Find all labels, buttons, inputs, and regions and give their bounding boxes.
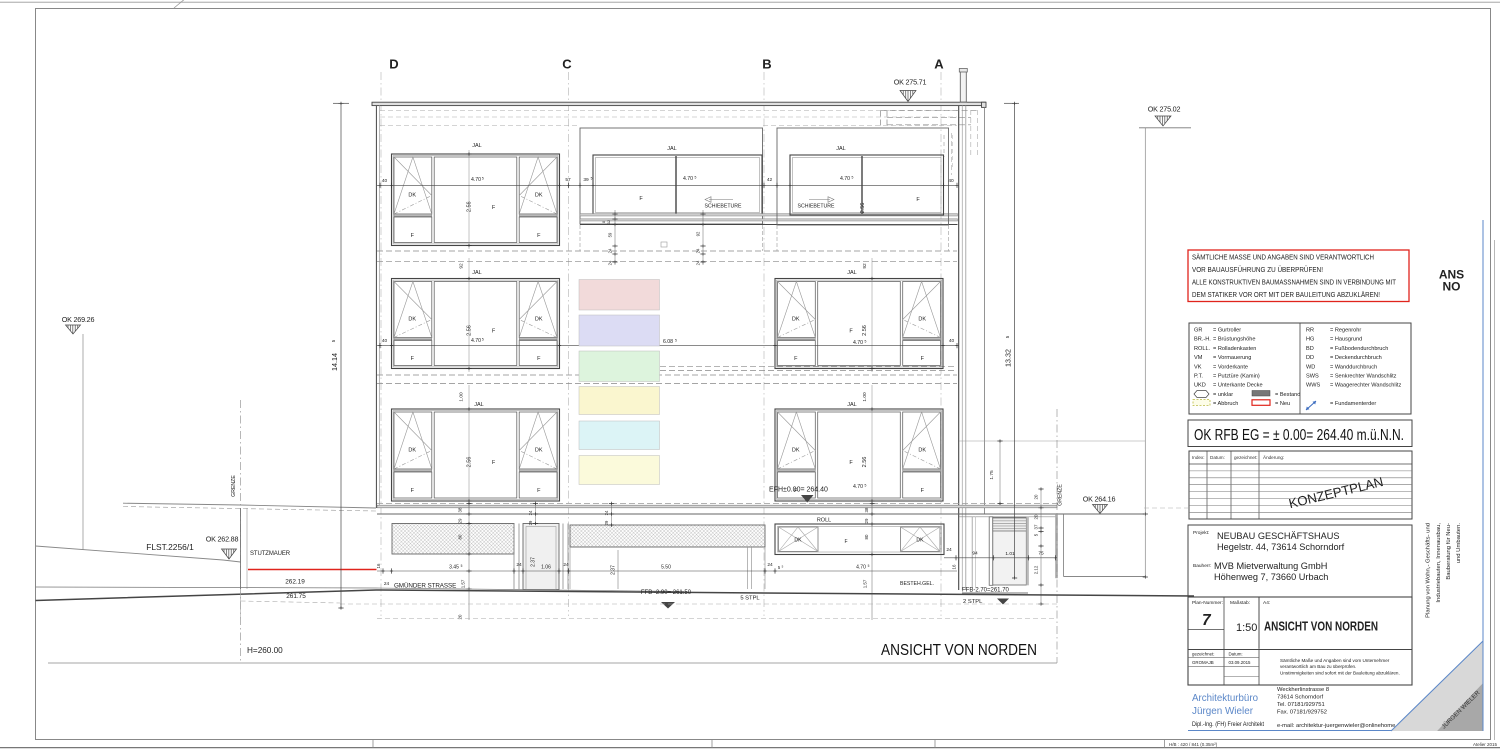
svg-text:5: 5 — [865, 484, 867, 488]
svg-text:2.56: 2.56 — [467, 457, 473, 468]
svg-text:= Abbruch: = Abbruch — [1213, 401, 1238, 407]
svg-text:29: 29 — [604, 520, 609, 525]
svg-text:e-mail: architektur-juergenwie: e-mail: architektur-juergenwieler@online… — [1277, 723, 1403, 729]
svg-text:H/B : 420 / 841 (0.35m²): H/B : 420 / 841 (0.35m²) — [1169, 742, 1218, 747]
svg-text:= Gurtroller: = Gurtroller — [1213, 328, 1241, 334]
svg-text:13.32: 13.32 — [1004, 349, 1013, 367]
svg-text:24: 24 — [608, 248, 613, 253]
svg-text:24: 24 — [946, 547, 952, 553]
svg-text:40: 40 — [948, 178, 954, 184]
svg-text:5: 5 — [852, 176, 854, 180]
svg-text:1.06: 1.06 — [541, 565, 551, 571]
svg-text:4.70: 4.70 — [853, 484, 863, 490]
svg-text:2.56: 2.56 — [467, 325, 473, 336]
svg-text:= unklar: = unklar — [1213, 392, 1233, 398]
svg-text:Jürgen Wieler: Jürgen Wieler — [1192, 705, 1253, 717]
svg-text:JAL: JAL — [836, 146, 845, 152]
svg-text:DK: DK — [916, 538, 924, 544]
svg-text:Datum:: Datum: — [1210, 455, 1225, 460]
svg-text:2.37: 2.37 — [531, 557, 537, 567]
svg-text:Industriebauten, Innenausbau,: Industriebauten, Innenausbau, — [1436, 523, 1442, 603]
svg-text:DD: DD — [1306, 355, 1314, 361]
svg-text:2.56: 2.56 — [467, 201, 473, 212]
svg-text:1.00: 1.00 — [862, 392, 868, 402]
svg-text:= Fußbodendurchbruch: = Fußbodendurchbruch — [1330, 346, 1388, 352]
svg-text:DK: DK — [535, 317, 543, 323]
svg-text:DK: DK — [794, 538, 802, 544]
svg-text:UKD: UKD — [1194, 383, 1206, 389]
svg-text:57: 57 — [565, 177, 571, 183]
svg-text:94: 94 — [972, 551, 978, 557]
svg-text:gezeichnet:: gezeichnet: — [1192, 651, 1214, 656]
svg-text:NO: NO — [1443, 280, 1461, 294]
svg-text:JAL: JAL — [472, 270, 481, 276]
svg-text:40: 40 — [382, 178, 388, 184]
svg-text:4.70: 4.70 — [853, 340, 863, 346]
svg-text:Dipl.-Ing. (FH) Freier Archite: Dipl.-Ing. (FH) Freier Architekt — [1192, 721, 1264, 728]
svg-text:C: C — [562, 57, 572, 72]
svg-text:92: 92 — [696, 231, 701, 236]
svg-text:= Vormauerung: = Vormauerung — [1213, 355, 1251, 361]
svg-text:FFB-2.70=261.70: FFB-2.70=261.70 — [962, 588, 1010, 594]
svg-text:14.14: 14.14 — [330, 353, 339, 371]
svg-text:B: B — [762, 57, 771, 72]
svg-text:und Umbauten.: und Umbauten. — [1456, 523, 1462, 564]
svg-text:ROLL: ROLL — [817, 518, 831, 524]
svg-text:5 STPL: 5 STPL — [740, 596, 760, 602]
svg-text:STUTZMAUER: STUTZMAUER — [250, 551, 291, 557]
svg-text:80: 80 — [864, 534, 869, 539]
svg-text:20: 20 — [1034, 494, 1039, 499]
svg-text:24: 24 — [767, 562, 773, 568]
svg-text:Atelier 2015: Atelier 2015 — [1473, 742, 1498, 747]
svg-text:Index:: Index: — [1192, 455, 1205, 460]
svg-text:Architekturbüro: Architekturbüro — [1192, 692, 1258, 704]
svg-text:SWS: SWS — [1306, 374, 1319, 380]
svg-text:= Hausgrund: = Hausgrund — [1330, 337, 1362, 343]
svg-text:12: 12 — [607, 220, 611, 224]
svg-text:JAL: JAL — [847, 270, 856, 276]
svg-text:Projekt:: Projekt: — [1193, 530, 1209, 536]
svg-text:Änderung:: Änderung: — [1263, 454, 1284, 460]
svg-text:Fax. 07181/929752: Fax. 07181/929752 — [1277, 710, 1327, 716]
svg-text:= Wanddurchbruch: = Wanddurchbruch — [1330, 364, 1377, 370]
svg-text:OK 269.26: OK 269.26 — [62, 315, 95, 324]
svg-text:JAL: JAL — [847, 402, 856, 408]
svg-text:5: 5 — [461, 564, 463, 568]
svg-text:59: 59 — [608, 232, 613, 237]
svg-text:= Bestand: = Bestand — [1275, 392, 1300, 398]
svg-text:80: 80 — [458, 534, 463, 539]
svg-text:OK 275.02: OK 275.02 — [1148, 105, 1181, 114]
svg-text:29: 29 — [528, 520, 533, 525]
svg-text:40: 40 — [949, 338, 955, 344]
svg-text:GROMAJB: GROMAJB — [1192, 660, 1214, 665]
svg-text:5: 5 — [868, 564, 870, 568]
svg-text:DK: DK — [408, 448, 416, 454]
svg-text:7: 7 — [1202, 612, 1212, 629]
svg-text:P.T.: P.T. — [1194, 374, 1203, 380]
svg-text:DEM STATIKER VOR ORT MIT DER B: DEM STATIKER VOR ORT MIT DER BAULEITUNG … — [1192, 290, 1380, 299]
svg-text:5: 5 — [675, 339, 677, 343]
svg-text:39: 39 — [583, 177, 589, 183]
svg-text:Höhenweg 7, 73660 Urbach: Höhenweg 7, 73660 Urbach — [1214, 572, 1328, 582]
svg-text:DK: DK — [918, 448, 926, 454]
svg-text:92: 92 — [459, 263, 465, 269]
svg-text:BR.-H.: BR.-H. — [1194, 337, 1211, 343]
svg-text:5: 5 — [591, 177, 593, 181]
svg-text:4.70: 4.70 — [471, 338, 481, 344]
svg-text:BD: BD — [1306, 346, 1314, 352]
svg-text:1.75: 1.75 — [989, 470, 995, 480]
svg-text:38: 38 — [458, 507, 463, 512]
svg-text:24: 24 — [516, 562, 522, 568]
svg-text:92: 92 — [862, 263, 868, 269]
svg-text:MVB Mietverwaltung GmbH: MVB Mietverwaltung GmbH — [1214, 561, 1327, 571]
svg-text:FLST.2256/1: FLST.2256/1 — [146, 542, 194, 552]
svg-text:DK: DK — [792, 317, 800, 323]
svg-text:RR: RR — [1306, 328, 1314, 334]
svg-text:= Putztüre (Kamin): = Putztüre (Kamin) — [1213, 374, 1260, 380]
svg-text:H=260.00: H=260.00 — [247, 646, 283, 655]
svg-text:= Deckendurchbruch: = Deckendurchbruch — [1330, 355, 1382, 361]
svg-text:D: D — [389, 57, 398, 72]
svg-text:73614 Schorndorf: 73614 Schorndorf — [1277, 695, 1323, 701]
svg-text:5.50: 5.50 — [661, 565, 671, 571]
svg-text:DK: DK — [792, 448, 800, 454]
svg-text:JAL: JAL — [474, 402, 483, 408]
svg-text:VK: VK — [1194, 364, 1202, 370]
svg-text:1.57: 1.57 — [863, 579, 868, 588]
svg-text:2.56: 2.56 — [862, 325, 868, 336]
svg-text:VOR BAUAUSFÜHRUNG ZU ÜBERPRÜFE: VOR BAUAUSFÜHRUNG ZU ÜBERPRÜFEN! — [1192, 265, 1323, 274]
svg-text:Tel. 07181/929751: Tel. 07181/929751 — [1277, 702, 1325, 708]
svg-text:= Vorderkante: = Vorderkante — [1213, 364, 1248, 370]
svg-text:40: 40 — [382, 338, 388, 344]
svg-text:6.08: 6.08 — [663, 339, 673, 345]
svg-text:ANSICHT VON NORDEN: ANSICHT VON NORDEN — [881, 642, 1037, 659]
svg-text:5: 5 — [865, 340, 867, 344]
svg-text:OK RFB EG = ± 0.00= 264.40 m.ü: OK RFB EG = ± 0.00= 264.40 m.ü.N.N. — [1194, 427, 1404, 444]
svg-text:262.19: 262.19 — [285, 579, 305, 586]
svg-text:16: 16 — [952, 564, 957, 569]
svg-text:DK: DK — [535, 193, 543, 199]
svg-text:03.09.2015: 03.09.2015 — [1229, 660, 1252, 665]
svg-text:38: 38 — [864, 507, 869, 512]
svg-text:DK: DK — [408, 317, 416, 323]
svg-text:Plan-Nummer:: Plan-Nummer: — [1192, 600, 1223, 606]
svg-text:2.37: 2.37 — [611, 565, 617, 575]
svg-text:4.70: 4.70 — [471, 177, 481, 183]
svg-text:24: 24 — [563, 562, 569, 568]
svg-text:1.01: 1.01 — [1005, 551, 1015, 557]
svg-text:NEUBAU GESCHÄFTSHAUS: NEUBAU GESCHÄFTSHAUS — [1217, 531, 1340, 541]
svg-text:5: 5 — [695, 176, 697, 180]
svg-text:Hegelstr. 44, 73614 Schorndorf: Hegelstr. 44, 73614 Schorndorf — [1217, 542, 1345, 552]
svg-text:= Fundamenterder: = Fundamenterder — [1330, 401, 1376, 407]
svg-text:Weckherlinstrasse 8: Weckherlinstrasse 8 — [1277, 687, 1329, 693]
svg-text:29: 29 — [458, 518, 463, 523]
svg-text:Maßstab:: Maßstab: — [1230, 600, 1250, 606]
svg-text:5: 5 — [482, 177, 484, 181]
svg-text:3.45: 3.45 — [449, 565, 459, 571]
svg-text:BESTEH.GEL.: BESTEH.GEL. — [900, 581, 934, 587]
svg-text:SÄMTLICHE MASSE UND ANGABEN SI: SÄMTLICHE MASSE UND ANGABEN SIND VERANTW… — [1192, 253, 1374, 262]
svg-text:29: 29 — [864, 518, 869, 523]
svg-text:24: 24 — [384, 581, 390, 587]
svg-text:Bauherr:: Bauherr: — [1193, 563, 1211, 569]
svg-text:A: A — [934, 57, 944, 72]
svg-text:= Senkrechter Wandschlitz: = Senkrechter Wandschlitz — [1330, 374, 1397, 380]
svg-text:Planung von Wohn,- Geschäfts-: Planung von Wohn,- Geschäfts- und — [1426, 523, 1432, 618]
svg-text:4.70: 4.70 — [683, 176, 693, 182]
svg-text:WD: WD — [1306, 364, 1315, 370]
svg-text:GRENZE: GRENZE — [1058, 484, 1064, 506]
svg-text:Sämtliche Maße und Angaben sin: Sämtliche Maße und Angaben sind vom Unte… — [1280, 658, 1390, 663]
svg-text:37: 37 — [1034, 524, 1039, 529]
svg-text:Unstimmigkeiten sind sofort mi: Unstimmigkeiten sind sofort mit der Baul… — [1280, 670, 1400, 675]
svg-text:ROLL.: ROLL. — [1194, 346, 1211, 352]
svg-text:24: 24 — [604, 510, 609, 515]
svg-text:gezeichnet:: gezeichnet: — [1234, 455, 1258, 460]
svg-text:VM: VM — [1194, 355, 1203, 361]
svg-text:42: 42 — [767, 177, 773, 183]
svg-text:24: 24 — [696, 248, 701, 253]
svg-text:= Brüstungshöhe: = Brüstungshöhe — [1213, 337, 1255, 343]
svg-text:HG: HG — [1306, 337, 1314, 343]
svg-text:DK: DK — [408, 193, 416, 199]
svg-text:ANSICHT VON NORDEN: ANSICHT VON NORDEN — [1264, 620, 1378, 634]
svg-text:= Neu: = Neu — [1275, 401, 1290, 407]
svg-text:261.75: 261.75 — [286, 593, 306, 600]
svg-text:OK 262.88: OK 262.88 — [206, 535, 239, 544]
svg-text:verantwortlich am Bau zu überp: verantwortlich am Bau zu überprüfen. — [1280, 664, 1356, 669]
svg-text:= Rolladenkasten: = Rolladenkasten — [1213, 346, 1256, 352]
svg-text:JAL: JAL — [472, 143, 481, 149]
svg-text:Bauberatung für Neu-: Bauberatung für Neu- — [1446, 523, 1452, 580]
svg-text:DK: DK — [918, 317, 926, 323]
svg-text:16: 16 — [376, 563, 381, 568]
svg-text:FFB -2.90= 261.50: FFB -2.90= 261.50 — [641, 590, 692, 596]
svg-text:2.56: 2.56 — [860, 203, 866, 214]
svg-text:F: F — [844, 539, 847, 545]
svg-text:1.57: 1.57 — [461, 579, 466, 588]
svg-text:4.70: 4.70 — [840, 176, 850, 182]
svg-text:EFH±0.00= 264.40: EFH±0.00= 264.40 — [769, 487, 828, 494]
svg-text:20: 20 — [1034, 514, 1039, 519]
svg-text:= Waagerechter Wandschlitz: = Waagerechter Wandschlitz — [1330, 383, 1401, 389]
svg-text:4.70: 4.70 — [856, 565, 866, 571]
svg-text:SCHIEBETURE: SCHIEBETURE — [798, 204, 835, 210]
svg-text:= Regenrohr: = Regenrohr — [1330, 328, 1361, 334]
svg-text:1:50: 1:50 — [1236, 622, 1257, 634]
svg-text:24: 24 — [528, 510, 533, 515]
svg-text:DK: DK — [535, 448, 543, 454]
svg-text:WWS: WWS — [1306, 383, 1321, 389]
svg-text:GRENZE: GRENZE — [231, 475, 237, 497]
svg-text:SCHIEBETURE: SCHIEBETURE — [705, 204, 742, 210]
svg-text:GR: GR — [1194, 328, 1202, 334]
svg-text:OK 275.71: OK 275.71 — [894, 78, 927, 87]
svg-text:JAL: JAL — [667, 146, 676, 152]
svg-text:2.12: 2.12 — [1034, 565, 1039, 574]
svg-text:8: 8 — [602, 221, 606, 223]
svg-text:Datum:: Datum: — [1229, 651, 1243, 656]
svg-text:ALLE KONSTRUKTIVEN BAUMASSNAHM: ALLE KONSTRUKTIVEN BAUMASSNAHMEN SIND IN… — [1192, 278, 1396, 287]
svg-text:1.00: 1.00 — [459, 392, 465, 402]
svg-text:= Unterkante Decke: = Unterkante Decke — [1213, 383, 1263, 389]
svg-text:OK 264.16: OK 264.16 — [1083, 495, 1116, 504]
svg-text:A4:: A4: — [1263, 600, 1270, 606]
svg-text:24: 24 — [696, 260, 701, 265]
svg-text:24: 24 — [608, 260, 613, 265]
svg-text:5: 5 — [482, 338, 484, 342]
svg-text:2.56: 2.56 — [862, 457, 868, 468]
